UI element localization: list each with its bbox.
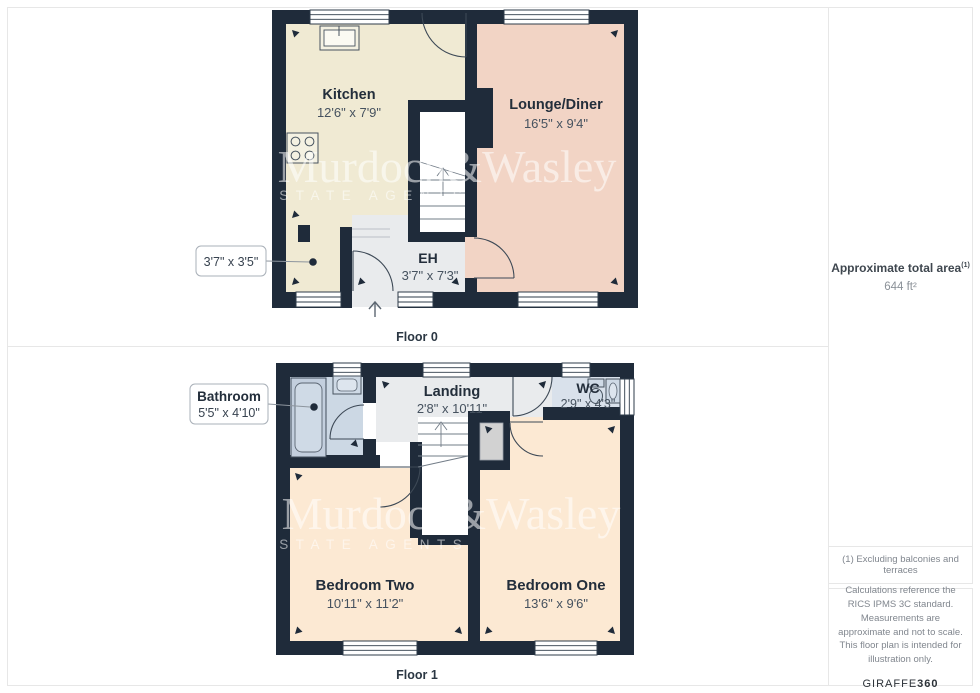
window — [343, 641, 417, 655]
floor0-plan: 3'7" x 3'5" Kitchen 12'6" x 7'9" Lounge/… — [196, 10, 638, 344]
window — [296, 292, 341, 307]
bedroom-one-label: Bedroom One — [506, 577, 605, 594]
bathroom-label: Bathroom — [197, 389, 261, 404]
lounge-label: Lounge/Diner — [509, 97, 603, 113]
sink-icon — [333, 376, 361, 394]
kitchen-dims: 12'6" x 7'9" — [317, 105, 381, 120]
window — [535, 641, 597, 655]
window — [310, 10, 389, 24]
window — [518, 292, 598, 307]
landing-dims: 2'8" x 10'11" — [417, 401, 488, 416]
svg-text:ESTATE AGENTS: ESTATE AGENTS — [263, 537, 470, 552]
lounge-dims: 16'5" x 9'4" — [524, 116, 588, 131]
window — [620, 379, 634, 415]
bathtub-icon — [291, 378, 326, 457]
kitchen-label: Kitchen — [322, 87, 375, 103]
window — [423, 363, 470, 377]
bedroom-one-dims: 13'6" x 9'6" — [524, 596, 588, 611]
sink-icon — [320, 26, 359, 50]
svg-text:Murdoch&Wasley: Murdoch&Wasley — [278, 141, 617, 192]
floorplan-drawing: 3'7" x 3'5" Kitchen 12'6" x 7'9" Lounge/… — [0, 0, 980, 693]
window — [504, 10, 589, 24]
window — [562, 363, 590, 377]
eh-dims: 3'7" x 7'3" — [402, 268, 459, 283]
svg-text:ESTATE AGENTS: ESTATE AGENTS — [263, 188, 470, 203]
landing-label: Landing — [424, 384, 480, 400]
floor1-plan: Bathroom 5'5" x 4'10" Landing 2'8" x 10'… — [190, 363, 634, 682]
bathroom-dims: 5'5" x 4'10" — [198, 406, 260, 420]
callout-dot — [310, 403, 318, 411]
wc-label: WC — [576, 380, 599, 396]
eh-label: EH — [418, 250, 437, 266]
window — [333, 363, 361, 377]
bedroom-two-label: Bedroom Two — [316, 577, 415, 594]
floor1-caption: Floor 1 — [396, 668, 438, 682]
callout-dot — [309, 258, 317, 266]
landing-room — [376, 417, 418, 442]
bedroom-two-dims: 10'11" x 11'2" — [327, 596, 404, 611]
wc-dims: 2'9" x 4'3" — [561, 397, 616, 411]
svg-text:Murdoch&Wasley: Murdoch&Wasley — [282, 488, 621, 539]
floor0-caption: Floor 0 — [396, 330, 438, 344]
entrance-steps-icon — [398, 292, 433, 307]
nook-dims: 3'7" x 3'5" — [204, 255, 259, 269]
